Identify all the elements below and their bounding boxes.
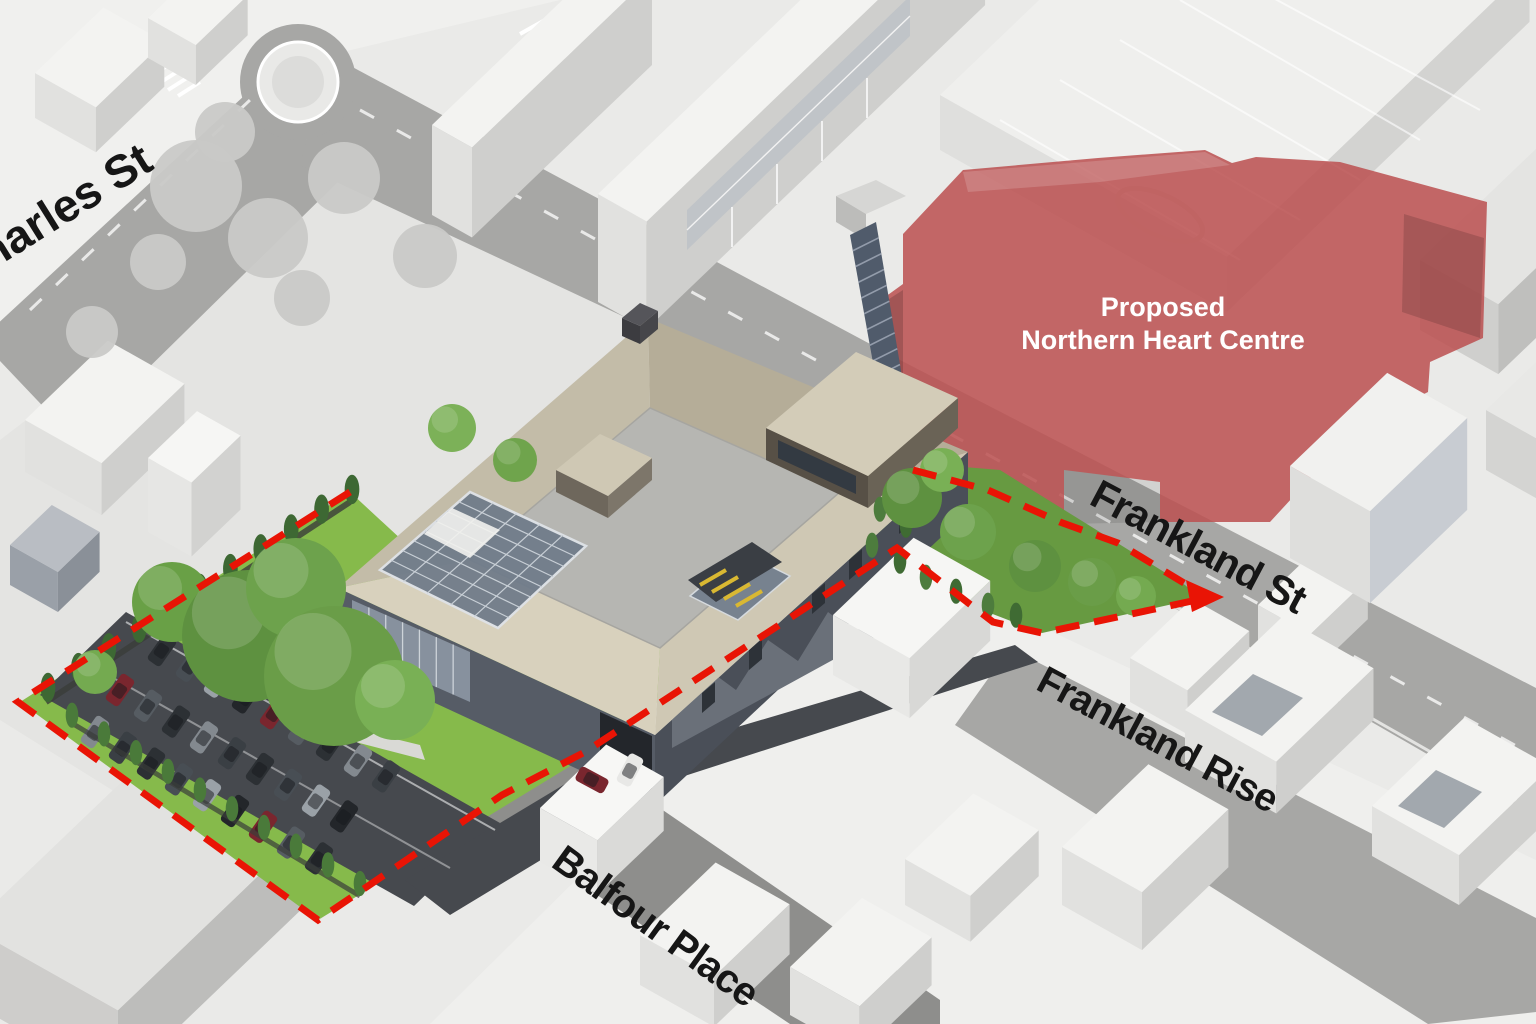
canopy-light (361, 664, 405, 708)
canopy-light (1013, 543, 1042, 572)
conifer (98, 721, 111, 746)
conifer-tree (345, 475, 360, 504)
canopy-light (1119, 578, 1141, 600)
conifer (66, 703, 79, 728)
conifer (258, 815, 271, 840)
conifer-tree (290, 834, 303, 859)
proposed-centre-label-line2: Northern Heart Centre (1003, 324, 1323, 357)
conifer-tree (866, 533, 879, 558)
context-tree (228, 198, 308, 278)
context-tree (308, 142, 380, 214)
canopy-light (275, 613, 352, 690)
canopy-light (496, 440, 520, 464)
conifer-tree (66, 703, 79, 728)
canopy-light (887, 471, 920, 504)
conifer-tree (226, 796, 239, 821)
conifer (1010, 603, 1023, 628)
site-plan-svg (0, 0, 1536, 1024)
site-plan-canvas: Charles St Frankland St Frankland Rise B… (0, 0, 1536, 1024)
canopy-light (254, 543, 309, 598)
deciduous-tree (493, 438, 537, 482)
conifer-tree (98, 721, 111, 746)
deciduous-tree (1009, 540, 1061, 592)
conifer-tree (194, 777, 207, 802)
proposed-centre-label-line1: Proposed (1003, 291, 1323, 324)
deciduous-tree (1068, 558, 1116, 606)
canopy-light (432, 406, 458, 432)
context-tree (274, 270, 330, 326)
roundabout-center (272, 56, 324, 108)
conifer (354, 871, 367, 896)
conifer-tree (314, 495, 329, 524)
conifer-tree (1010, 603, 1023, 628)
conifer-tree (258, 815, 271, 840)
conifer (866, 533, 879, 558)
conifer (322, 852, 335, 877)
conifer (130, 740, 143, 765)
conifer-tree (130, 740, 143, 765)
deciduous-tree (355, 660, 435, 740)
conifer (345, 475, 360, 504)
canopy-light (1072, 560, 1098, 586)
conifer (194, 777, 207, 802)
context-tree (195, 102, 255, 162)
conifer (290, 834, 303, 859)
proposed-centre-label: Proposed Northern Heart Centre (1003, 291, 1323, 358)
context-tree (66, 306, 118, 358)
deciduous-tree (73, 650, 117, 694)
conifer (226, 796, 239, 821)
conifer-tree (162, 759, 175, 784)
context-tree (130, 234, 186, 290)
deciduous-tree (428, 404, 476, 452)
conifer (162, 759, 175, 784)
conifer (314, 495, 329, 524)
conifer-tree (354, 871, 367, 896)
context-tree (393, 224, 457, 288)
deciduous-tree (940, 504, 996, 560)
conifer-tree (322, 852, 335, 877)
canopy-light (944, 507, 975, 538)
